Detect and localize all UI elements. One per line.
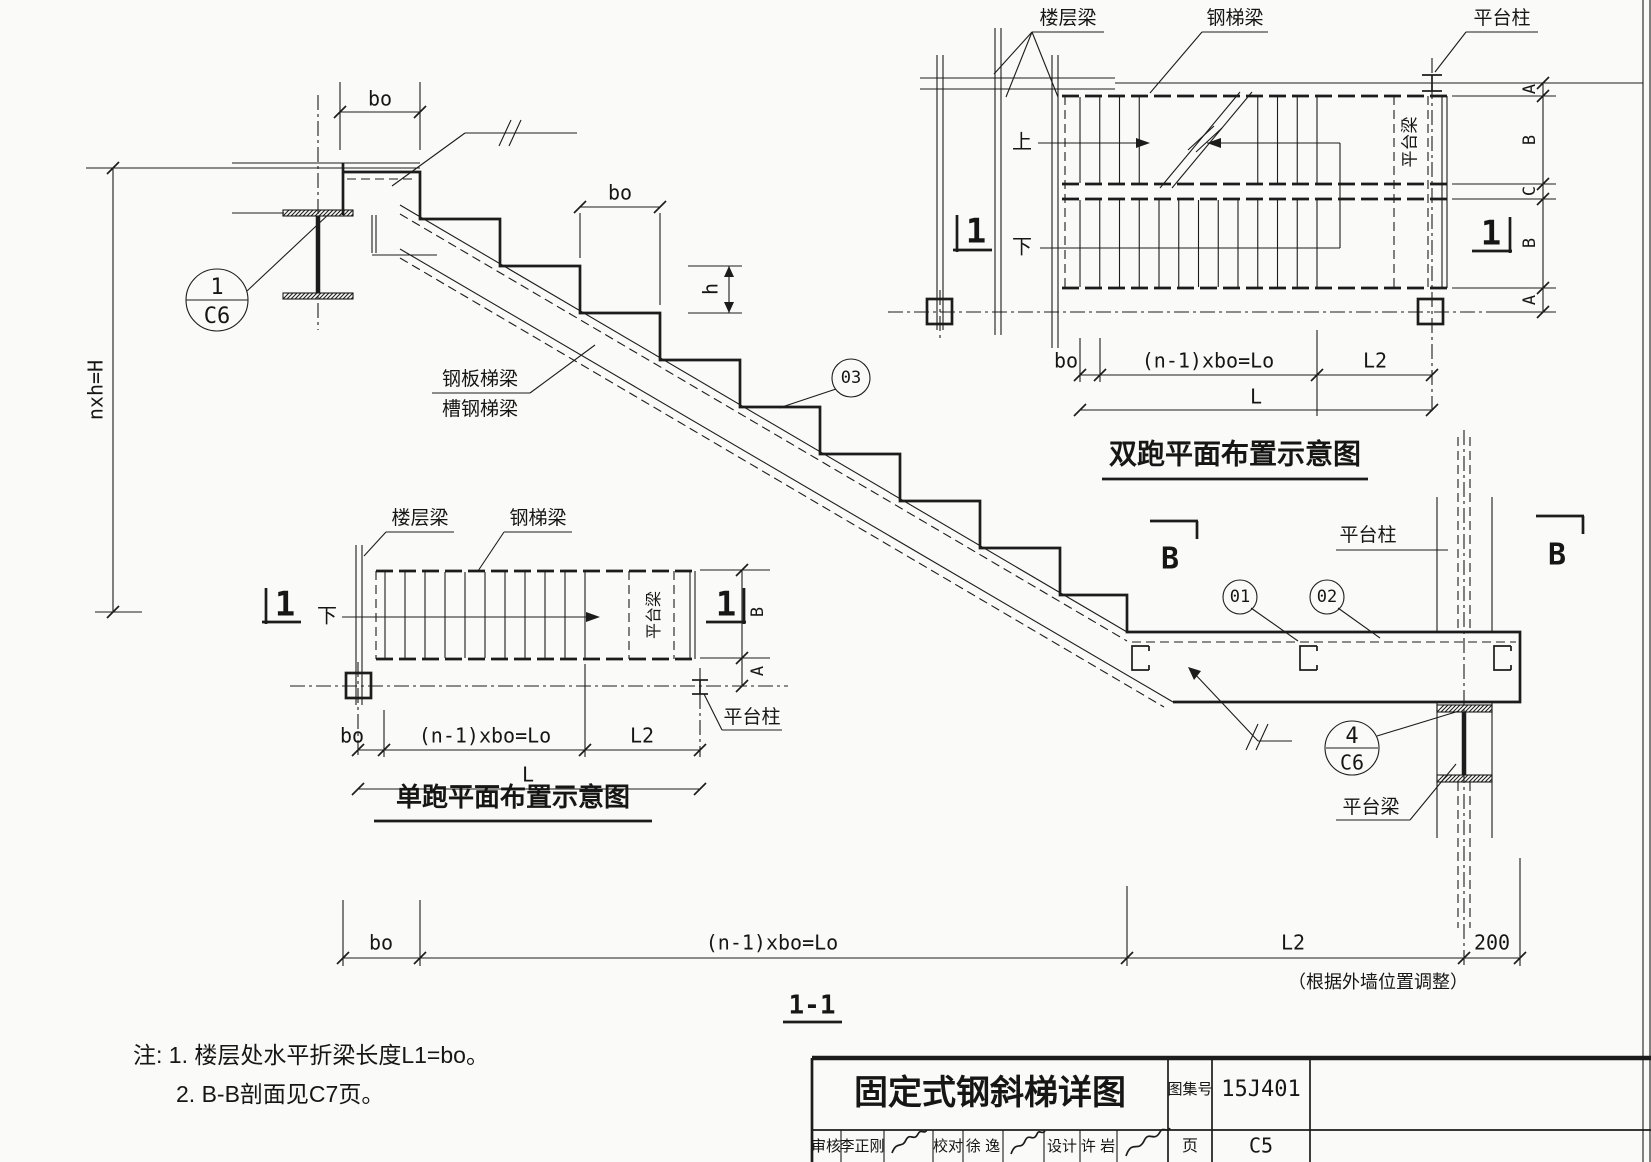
- dim-a2: A: [1520, 295, 1540, 305]
- match-line-leader-bottom: [1188, 667, 1292, 750]
- down-label: 下: [317, 605, 337, 627]
- stair-outline: [343, 172, 1520, 702]
- dim-lo: (n-1)xbo=Lo: [419, 724, 551, 748]
- designer-name: 许 岩: [1081, 1138, 1115, 1155]
- page-label: 页: [1182, 1138, 1198, 1155]
- dim-bottom-l2: L2: [1281, 931, 1305, 955]
- designer-label: 设计: [1047, 1138, 1077, 1155]
- dim-b2: B: [1520, 238, 1540, 248]
- up-label: 上: [1012, 130, 1032, 153]
- steel-ladder-detail-drawing: bo nxh=H bo h 1 C6 钢板梯梁 槽钢梯梁: [0, 0, 1651, 1162]
- note-line-1: 注: 1. 楼层处水平折梁长度L1=bo。: [133, 1042, 489, 1068]
- dim-bo-top: bo: [368, 87, 392, 111]
- title-block: 固定式钢斜梯详图 图集号 15J401 页 C5 审核 李正刚 校对 徐 逸 设…: [811, 1058, 1651, 1162]
- channel-section: [1494, 646, 1511, 670]
- page-number: C5: [1249, 1134, 1273, 1158]
- section-letter: B: [1161, 542, 1179, 577]
- double-run-title: 双跑平面布置示意图: [1109, 437, 1361, 469]
- signature-reviewer: [892, 1130, 927, 1153]
- reviewer-name: 李正刚: [839, 1138, 884, 1155]
- note-line-2: 2. B-B剖面见C7页。: [176, 1081, 384, 1107]
- drawing-sheet: bo nxh=H bo h 1 C6 钢板梯梁 槽钢梯梁: [0, 0, 1651, 1162]
- dim-bottom-200: 200: [1474, 931, 1510, 955]
- label-stair-beam: 钢梯梁: [509, 507, 566, 529]
- label-platform-column: 平台柱: [1339, 524, 1396, 546]
- label-platform-beam: 平台梁: [1342, 796, 1399, 818]
- drawing-title: 固定式钢斜梯详图: [854, 1074, 1126, 1112]
- label-platform-column: 平台柱: [723, 706, 780, 728]
- tread-lines: [385, 572, 585, 658]
- dim-l: L: [1250, 385, 1262, 409]
- callout-4-c6: 4 C6: [1325, 711, 1459, 775]
- dim-l2: L2: [1363, 349, 1387, 373]
- dim-bottom-bo: bo: [369, 931, 393, 955]
- section-marker-1-right: 1: [706, 585, 746, 625]
- section-marker-1-left: 1: [953, 212, 992, 253]
- checker-name: 徐 逸: [966, 1138, 1000, 1155]
- label-platform-beam: 平台梁: [645, 591, 663, 639]
- double-run-plan: 上 下 平台梁 楼层梁 钢梯梁 平台柱: [888, 7, 1643, 479]
- dim-bo-mid: bo: [608, 181, 632, 205]
- single-run-plan: 楼层梁 钢梯梁 下 平台梁 平台柱 1: [262, 507, 788, 821]
- channel-section: [1300, 646, 1317, 670]
- dim-b: B: [1520, 135, 1540, 145]
- label-plate-stringer: 钢板梯梁: [442, 368, 518, 390]
- callout-page: C6: [1340, 751, 1364, 775]
- dim-lo: (n-1)xbo=Lo: [1142, 349, 1274, 373]
- checker-label: 校对: [933, 1138, 963, 1155]
- label-platform-beam: 平台梁: [1400, 117, 1419, 168]
- section-number: 1: [966, 212, 986, 252]
- dim-h: h: [699, 283, 723, 295]
- notes: 注: 1. 楼层处水平折梁长度L1=bo。 2. B-B剖面见C7页。: [133, 1042, 489, 1107]
- wall-and-platform-column: [1437, 430, 1492, 966]
- section-bottom-dims: bo (n-1)xbo=Lo L2 200 （根据外墙位置调整）: [343, 858, 1520, 992]
- signature-checker: [1011, 1131, 1045, 1154]
- callout-1-c6: 1 C6: [186, 213, 330, 331]
- single-run-title: 单跑平面布置示意图: [396, 782, 630, 812]
- callout-number: 01: [1230, 587, 1250, 607]
- section-marker-b-left: B: [1150, 521, 1198, 577]
- platform-beam-section: [1437, 705, 1492, 782]
- wall-position-note: （根据外墙位置调整）: [1288, 972, 1468, 992]
- atlas-number: 15J401: [1221, 1077, 1300, 1102]
- dim-nxh-h: nxh=H: [84, 360, 108, 420]
- label-stair-beam: 钢梯梁: [1206, 7, 1263, 29]
- section-1-1: bo nxh=H bo h 1 C6 钢板梯梁 槽钢梯梁: [84, 82, 1585, 1022]
- dim-bo: bo: [340, 724, 364, 748]
- right-dim-chain: A B C B A: [1452, 83, 1556, 312]
- label-channel-stringer: 槽钢梯梁: [442, 398, 518, 420]
- signature-designer: [1126, 1128, 1170, 1156]
- callout-number: 02: [1317, 587, 1337, 607]
- section-marker-b-right: B: [1536, 516, 1584, 573]
- dim-bo: bo: [1054, 349, 1078, 373]
- section-title: 1-1: [789, 991, 836, 1021]
- label-platform-column: 平台柱: [1473, 7, 1530, 29]
- reviewer-label: 审核: [811, 1138, 841, 1155]
- tread-lines: [1080, 97, 1317, 287]
- atlas-number-label: 图集号: [1167, 1081, 1212, 1098]
- callout-number: 1: [210, 275, 223, 300]
- channel-section: [1132, 646, 1149, 670]
- callout-page: C6: [204, 304, 231, 329]
- dim-c: C: [1520, 186, 1540, 196]
- section-letter: B: [1548, 538, 1566, 573]
- down-label: 下: [1012, 236, 1032, 258]
- section-number: 1: [275, 585, 295, 625]
- callout-number: 03: [841, 368, 861, 388]
- dim-b: B: [748, 607, 768, 617]
- section-marker-1-left: 1: [262, 585, 301, 625]
- callout-number: 4: [1345, 724, 1358, 749]
- platform-column-symbol: [692, 680, 708, 694]
- double-run-bottom-dims: bo (n-1)xbo=Lo L2 L: [1054, 330, 1432, 416]
- section-number: 1: [716, 585, 736, 625]
- dim-bottom-lo: (n-1)xbo=Lo: [706, 931, 838, 955]
- dim-l2: L2: [630, 724, 654, 748]
- label-floor-beam: 楼层梁: [1039, 7, 1096, 29]
- callout-03: 03: [779, 359, 870, 408]
- callout-02: 02: [1310, 580, 1380, 638]
- dim-a: A: [748, 666, 768, 676]
- label-floor-beam: 楼层梁: [391, 507, 448, 529]
- section-marker-1-right: 1: [1472, 214, 1512, 254]
- single-run-bottom-dims: bo (n-1)xbo=Lo L2 L: [340, 664, 700, 789]
- section-number: 1: [1481, 214, 1501, 254]
